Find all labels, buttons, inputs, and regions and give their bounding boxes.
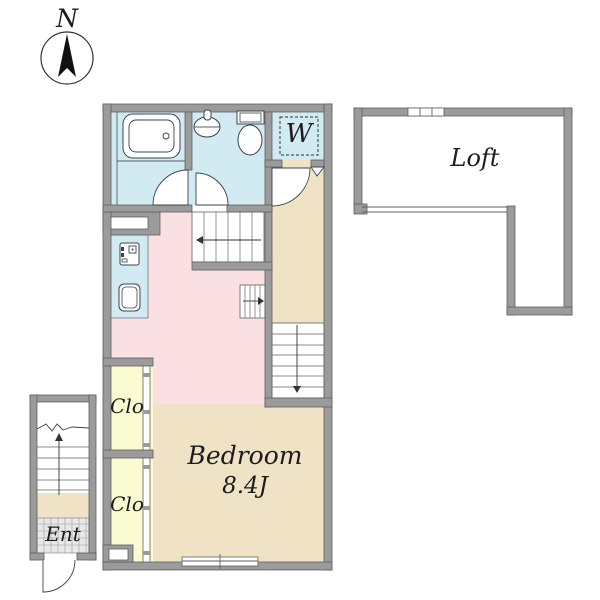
- loft-wall-bottom: [507, 307, 572, 315]
- loft-window: [408, 108, 444, 116]
- stairs-down: [272, 323, 324, 398]
- wall-closet-top: [103, 358, 153, 366]
- bedroom-size-label: 8.4J: [165, 474, 325, 498]
- stairs-to-loft: [192, 212, 264, 262]
- ent-wall-bottom-a: [30, 553, 44, 560]
- door-tick: [143, 465, 150, 469]
- washer-label: W: [279, 121, 319, 148]
- wall-washer-stub: [265, 160, 282, 167]
- loft-wall-right: [564, 108, 572, 315]
- loft-wall-inner: [507, 206, 515, 315]
- door-tick: [143, 373, 150, 377]
- wall-mid-vertical: [265, 112, 272, 407]
- wall-wet-bottom-a: [103, 205, 192, 212]
- compass: [41, 32, 93, 84]
- wall-washer-right: [311, 160, 324, 167]
- ent-wall-left: [30, 395, 37, 560]
- door-tick: [143, 551, 150, 555]
- entrance-stairwell: [30, 395, 96, 592]
- floor-plan-drawing: [0, 0, 600, 600]
- loft-wall-top: [354, 108, 572, 116]
- wall-closet-mid: [103, 450, 153, 458]
- wall-top: [103, 104, 332, 112]
- ent-wall-right: [89, 395, 96, 560]
- entry-landing: [37, 493, 89, 518]
- loft-label: Loft: [415, 146, 535, 171]
- corner-window: [109, 549, 128, 560]
- bathtub-icon: [123, 114, 180, 158]
- sink-tap: [204, 110, 211, 120]
- compass-label: N: [47, 6, 87, 32]
- entrance-label: Ent: [37, 524, 89, 545]
- wall-below-down-stairs: [265, 398, 332, 407]
- door-tick: [143, 443, 150, 447]
- north-needle-icon: [58, 34, 76, 77]
- wall-below-upper-stairs: [192, 262, 272, 270]
- ent-wall-top: [30, 395, 96, 402]
- bedroom-label: Bedroom: [165, 443, 325, 469]
- toilet-icon: [238, 125, 262, 155]
- closet-upper-label: Clo: [102, 396, 152, 417]
- loft-room: [354, 108, 572, 315]
- loft-wall-stub: [354, 204, 367, 214]
- closet-lower-label: Clo: [102, 494, 152, 515]
- loft-floor-narrow: [515, 207, 564, 307]
- floor-plan: N W Loft Clo Clo Bedroom 8.4J Ent: [0, 0, 600, 600]
- entrance-door: [43, 560, 75, 592]
- loft-wall-left: [354, 108, 362, 206]
- stairs-winder: [240, 285, 265, 318]
- ent-wall-bottom-b: [77, 553, 96, 560]
- wall-right: [324, 104, 332, 570]
- wall-wet-bottom-b: [227, 205, 272, 212]
- kitchen-window: [110, 217, 148, 229]
- wall-bath-toilet: [185, 112, 192, 170]
